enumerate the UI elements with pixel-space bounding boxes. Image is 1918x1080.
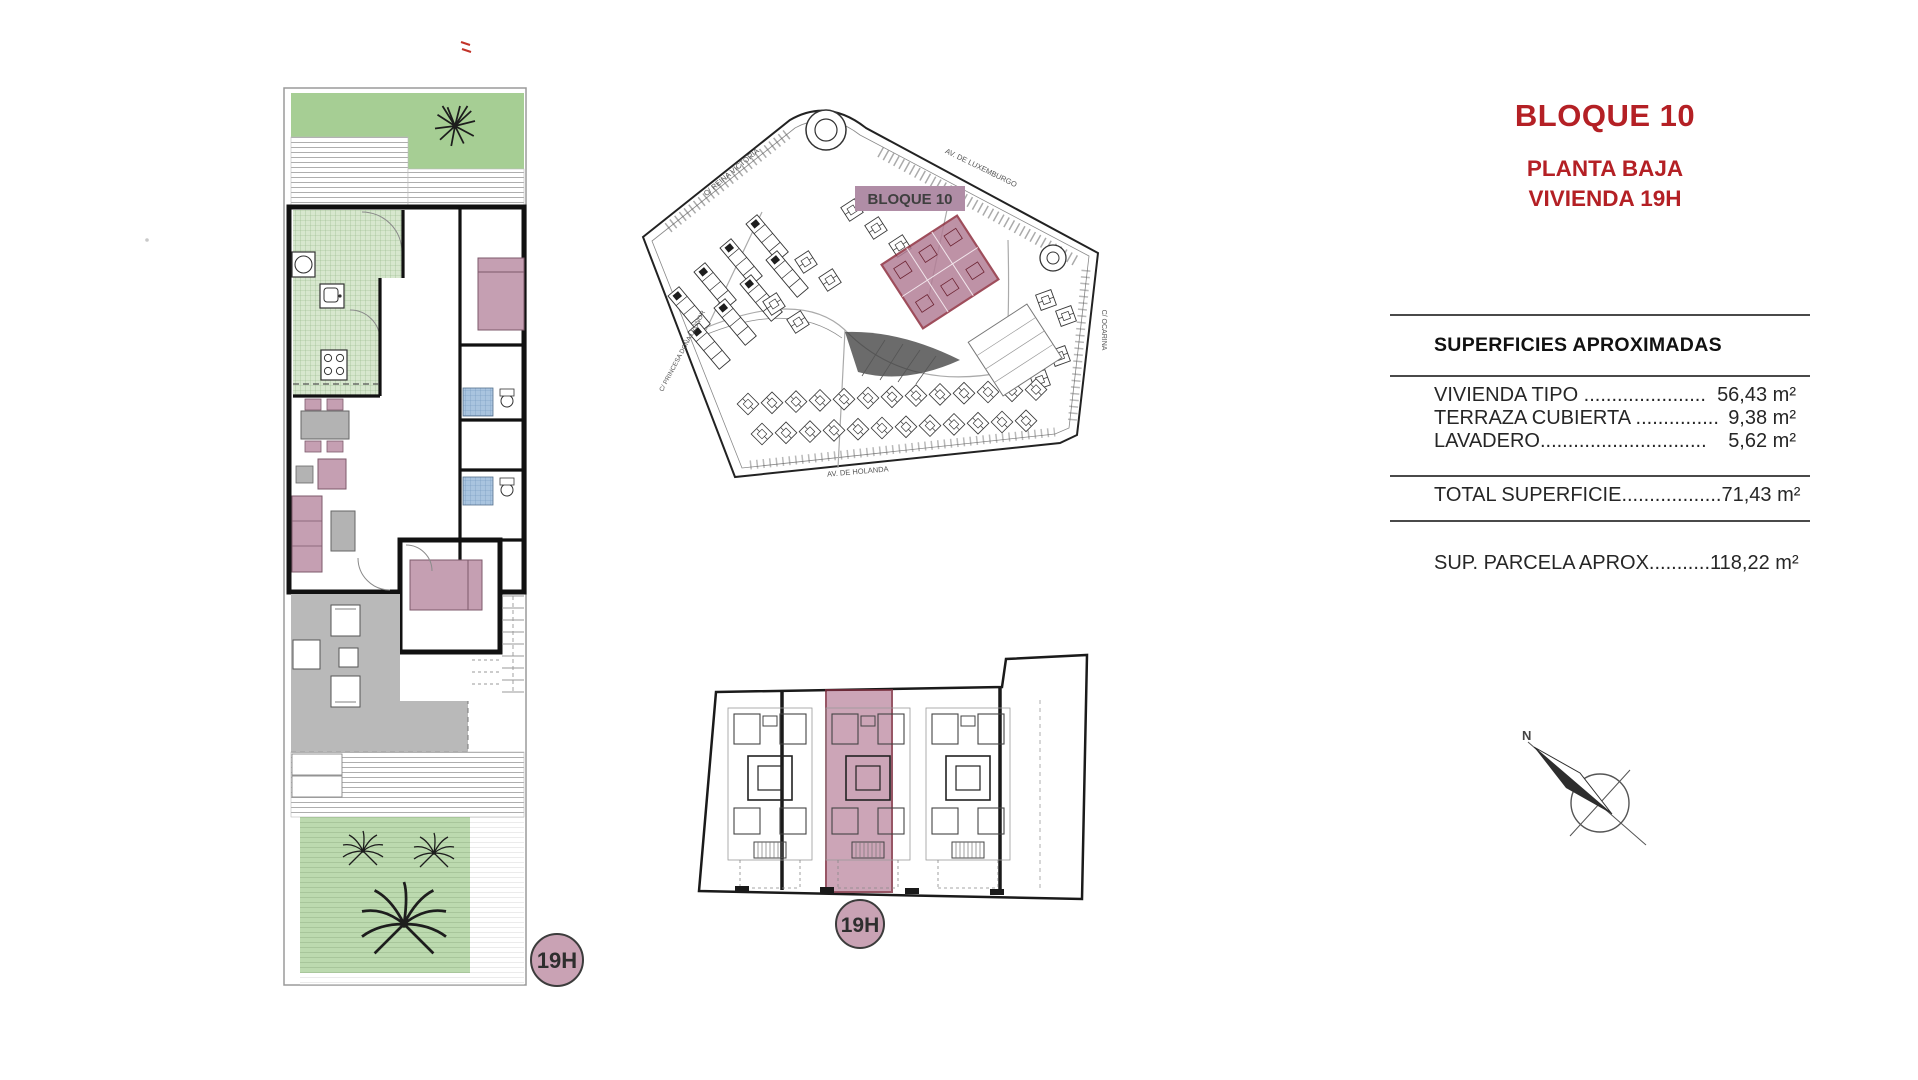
unit-badge-label: 19H <box>537 948 577 973</box>
row-value: 56,43 m² <box>1717 384 1796 407</box>
bathroom-floor <box>463 388 493 416</box>
surfaces-table: SUPERFICIES APROXIMADAS VIVIENDA TIPO ..… <box>1390 314 1810 604</box>
row-value: 71,43 m² <box>1721 484 1800 507</box>
row-label: LAVADERO.............................. <box>1434 430 1707 453</box>
table-rule <box>1390 314 1810 316</box>
unit-badge-block-plan: 19H <box>836 900 884 948</box>
garden-top <box>291 93 524 137</box>
row-value: 9,38 m² <box>1728 407 1796 430</box>
table-row: VIVIENDA TIPO ...................... 56,… <box>1434 384 1796 407</box>
title-block: BLOQUE 10 PLANTA BAJA VIVIENDA 19H <box>1440 98 1770 213</box>
row-label: SUP. PARCELA APROX........... <box>1434 552 1710 575</box>
table-row: TERRAZA CUBIERTA ............... 9,38 m² <box>1434 407 1796 430</box>
table-heading: SUPERFICIES APROXIMADAS <box>1434 334 1722 357</box>
unit-badge-floor-plan: 19H <box>531 934 583 986</box>
table-rule <box>1390 520 1810 522</box>
table-row: LAVADERO.............................. 5… <box>1434 430 1796 453</box>
highlighted-unit-band <box>826 690 892 892</box>
table-rule <box>1390 475 1810 477</box>
subtitle-unit: VIVIENDA 19H <box>1440 184 1770 214</box>
page-title: BLOQUE 10 <box>1440 98 1770 134</box>
red-mark <box>461 42 471 52</box>
row-label: VIVIENDA TIPO ...................... <box>1434 384 1706 407</box>
floor-plan: 19H <box>145 42 583 986</box>
row-label: TOTAL SUPERFICIE.................. <box>1434 484 1721 507</box>
row-value: 5,62 m² <box>1728 430 1796 453</box>
plan-sheet: 19H <box>0 0 1918 1080</box>
svg-text:BLOQUE 10: BLOQUE 10 <box>867 191 952 208</box>
row-value: 118,22 m² <box>1710 552 1799 575</box>
table-total-row: TOTAL SUPERFICIE.................. 71,43… <box>1434 484 1796 507</box>
street-label-ocarina: C/ OCARINA <box>1100 310 1107 351</box>
unit-badge-label: 19H <box>841 914 880 937</box>
compass-north-label: N <box>1522 728 1531 743</box>
site-plan: BLOQUE 10 C/ REINA VICTORIA AV. DE LUXEM… <box>643 110 1107 479</box>
table-rule <box>1390 375 1810 377</box>
compass-rose: N <box>1522 728 1646 845</box>
site-block-label: BLOQUE 10 <box>855 186 965 211</box>
subtitle-floor: PLANTA BAJA <box>1440 154 1770 184</box>
block-key-plan: 19H <box>699 655 1087 948</box>
bed <box>478 258 524 330</box>
table-parcel-row: SUP. PARCELA APROX........... 118,22 m² <box>1434 552 1796 575</box>
row-label: TERRAZA CUBIERTA ............... <box>1434 407 1719 430</box>
